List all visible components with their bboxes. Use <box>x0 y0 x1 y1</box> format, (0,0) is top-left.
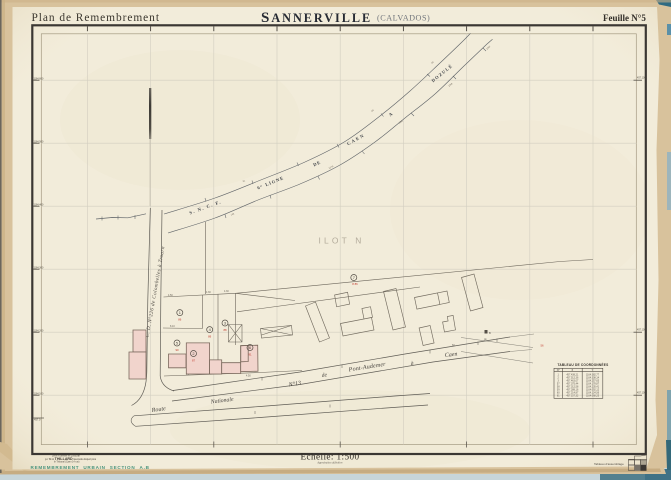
svg-text:90: 90 <box>175 348 179 352</box>
svg-text:457.100: 457.100 <box>637 329 646 332</box>
svg-text:(CALVADOS): (CALVADOS) <box>377 14 430 23</box>
svg-text:le Tribunal (Caen 14 rue): le Tribunal (Caen 14 rue) <box>54 461 80 464</box>
svg-text:8 86: 8 86 <box>352 282 358 286</box>
svg-text:Echelle: 1:500: Echelle: 1:500 <box>301 452 360 462</box>
svg-text:1164.500: 1164.500 <box>34 140 44 143</box>
svg-text:1164.200: 1164.200 <box>34 329 44 332</box>
svg-text:1164.068,25: 1164.068,25 <box>586 394 600 397</box>
svg-text:457.157,32: 457.157,32 <box>566 394 579 397</box>
svg-text:REMEMBREMENT URBAIN SECTION: REMEMBREMENT URBAIN SECTION A.B <box>31 465 150 470</box>
svg-text:1164.400: 1164.400 <box>34 203 44 206</box>
svg-text:1164.600: 1164.600 <box>34 77 44 80</box>
svg-text:1164.300: 1164.300 <box>34 266 44 269</box>
svg-text:3: 3 <box>224 321 226 326</box>
svg-text:4.50: 4.50 <box>246 375 251 378</box>
svg-text:4.50: 4.50 <box>168 294 173 297</box>
svg-text:TABLEAU DE COORDONNÉES: TABLEAU DE COORDONNÉES <box>558 362 609 367</box>
svg-text:89: 89 <box>208 334 212 338</box>
svg-text:1164.100: 1164.100 <box>34 392 44 395</box>
svg-text:457.100: 457.100 <box>637 77 646 80</box>
svg-text:457.100: 457.100 <box>637 392 646 395</box>
svg-text:88: 88 <box>223 328 227 332</box>
svg-text:Approbation définitive: Approbation définitive <box>316 461 343 464</box>
svg-text:ILOT N: ILOT N <box>319 235 365 245</box>
svg-text:86: 86 <box>178 317 182 321</box>
svg-text:Feuille N°5: Feuille N°5 <box>603 13 646 23</box>
svg-text:Plan de Remembrement: Plan de Remembrement <box>32 12 160 24</box>
svg-text:B: B <box>489 331 491 335</box>
svg-text:87: 87 <box>192 358 196 362</box>
svg-text:8.10: 8.10 <box>170 325 175 328</box>
svg-text:91: 91 <box>248 352 252 356</box>
svg-text:4.30: 4.30 <box>206 291 211 294</box>
svg-text:N°: N° <box>557 369 560 372</box>
svg-text:56: 56 <box>540 343 544 347</box>
svg-text:SANNERVILLE: SANNERVILLE <box>261 10 372 26</box>
svg-text:2: 2 <box>192 351 194 356</box>
svg-text:5: 5 <box>176 341 178 346</box>
svg-text:Tableau d'assemblage: Tableau d'assemblage <box>594 462 624 466</box>
svg-text:4.30: 4.30 <box>224 290 229 293</box>
svg-text:7: 7 <box>353 275 355 280</box>
svg-text:1: 1 <box>179 310 181 315</box>
svg-text:6: 6 <box>249 345 251 350</box>
